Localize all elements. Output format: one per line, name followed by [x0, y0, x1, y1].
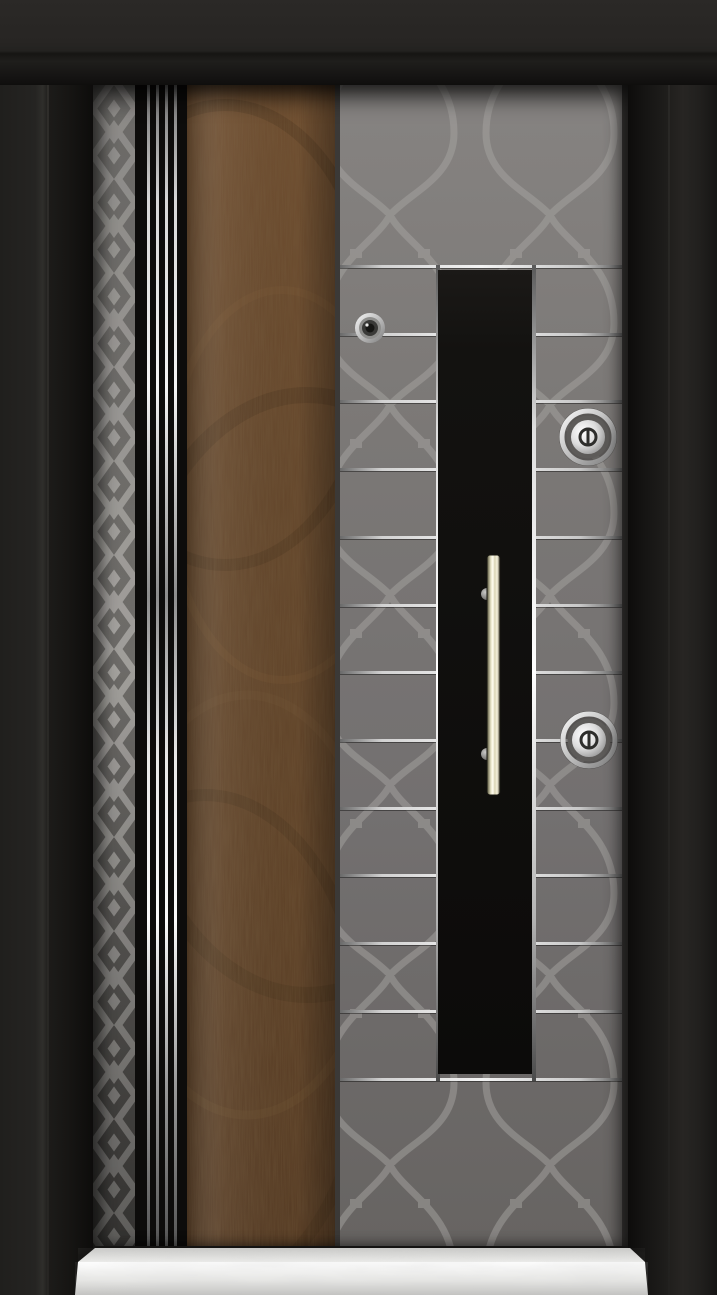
- threshold-top-veins: [78, 1248, 645, 1262]
- center-black-panel: [438, 270, 532, 1074]
- door-scene: [0, 0, 717, 1295]
- frame-seam-left: [47, 85, 49, 1295]
- chrome-stripe: [156, 85, 159, 1246]
- door-handle-bar: [487, 555, 500, 795]
- quatrefoil-panel: [335, 85, 628, 1246]
- panel-left-edge: [335, 85, 340, 1246]
- chrome-inlay-line-shadow: [340, 1081, 622, 1082]
- lock-cylinder-lower: [560, 711, 618, 769]
- chrome-stripe: [165, 85, 168, 1246]
- door-frame-right: [628, 85, 717, 1295]
- panel-right-edge: [622, 85, 628, 1246]
- chrome-stripe-strip: [135, 85, 187, 1246]
- chrome-stripe: [147, 85, 150, 1246]
- chrome-stripe: [174, 85, 177, 1246]
- wood-panel: [187, 85, 335, 1246]
- lock-cylinder-upper: [559, 408, 617, 466]
- peephole: [355, 313, 385, 343]
- threshold-veins: [75, 1262, 648, 1295]
- chrome-inlay-line: [340, 1078, 622, 1081]
- diamond-pattern-strip: [93, 85, 135, 1246]
- diamond-strip-shading: [93, 85, 135, 1246]
- door-frame-top: [0, 0, 717, 85]
- center-panel-chrome-right: [532, 265, 536, 1081]
- chrome-inlay-line: [340, 265, 622, 268]
- marble-threshold: [60, 1244, 660, 1295]
- chrome-inlay-line-shadow: [340, 268, 622, 269]
- wood-sheen: [187, 85, 335, 1246]
- frame-seam-right: [668, 85, 670, 1295]
